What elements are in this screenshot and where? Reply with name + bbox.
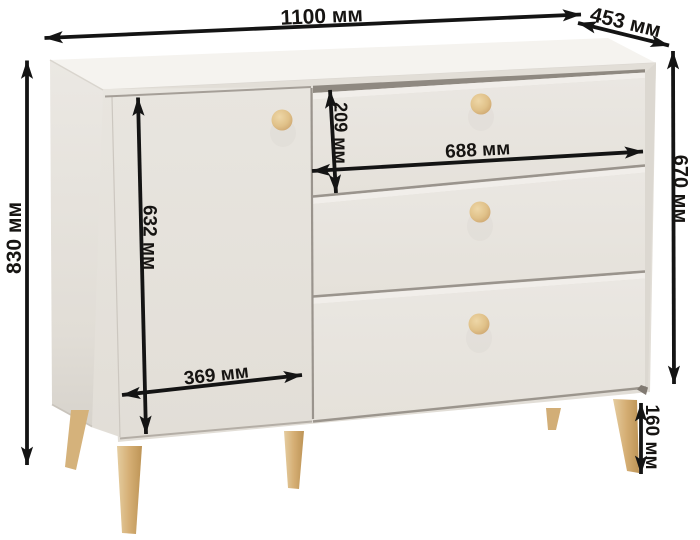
svg-text:632 мм: 632 мм xyxy=(139,205,160,270)
svg-text:1100 мм: 1100 мм xyxy=(280,3,363,30)
svg-text:830 мм: 830 мм xyxy=(3,202,26,274)
svg-text:160 мм: 160 мм xyxy=(641,404,662,469)
svg-text:209 мм: 209 мм xyxy=(331,102,351,164)
svg-text:688 мм: 688 мм xyxy=(445,138,511,163)
svg-text:670 мм: 670 мм xyxy=(669,155,691,224)
